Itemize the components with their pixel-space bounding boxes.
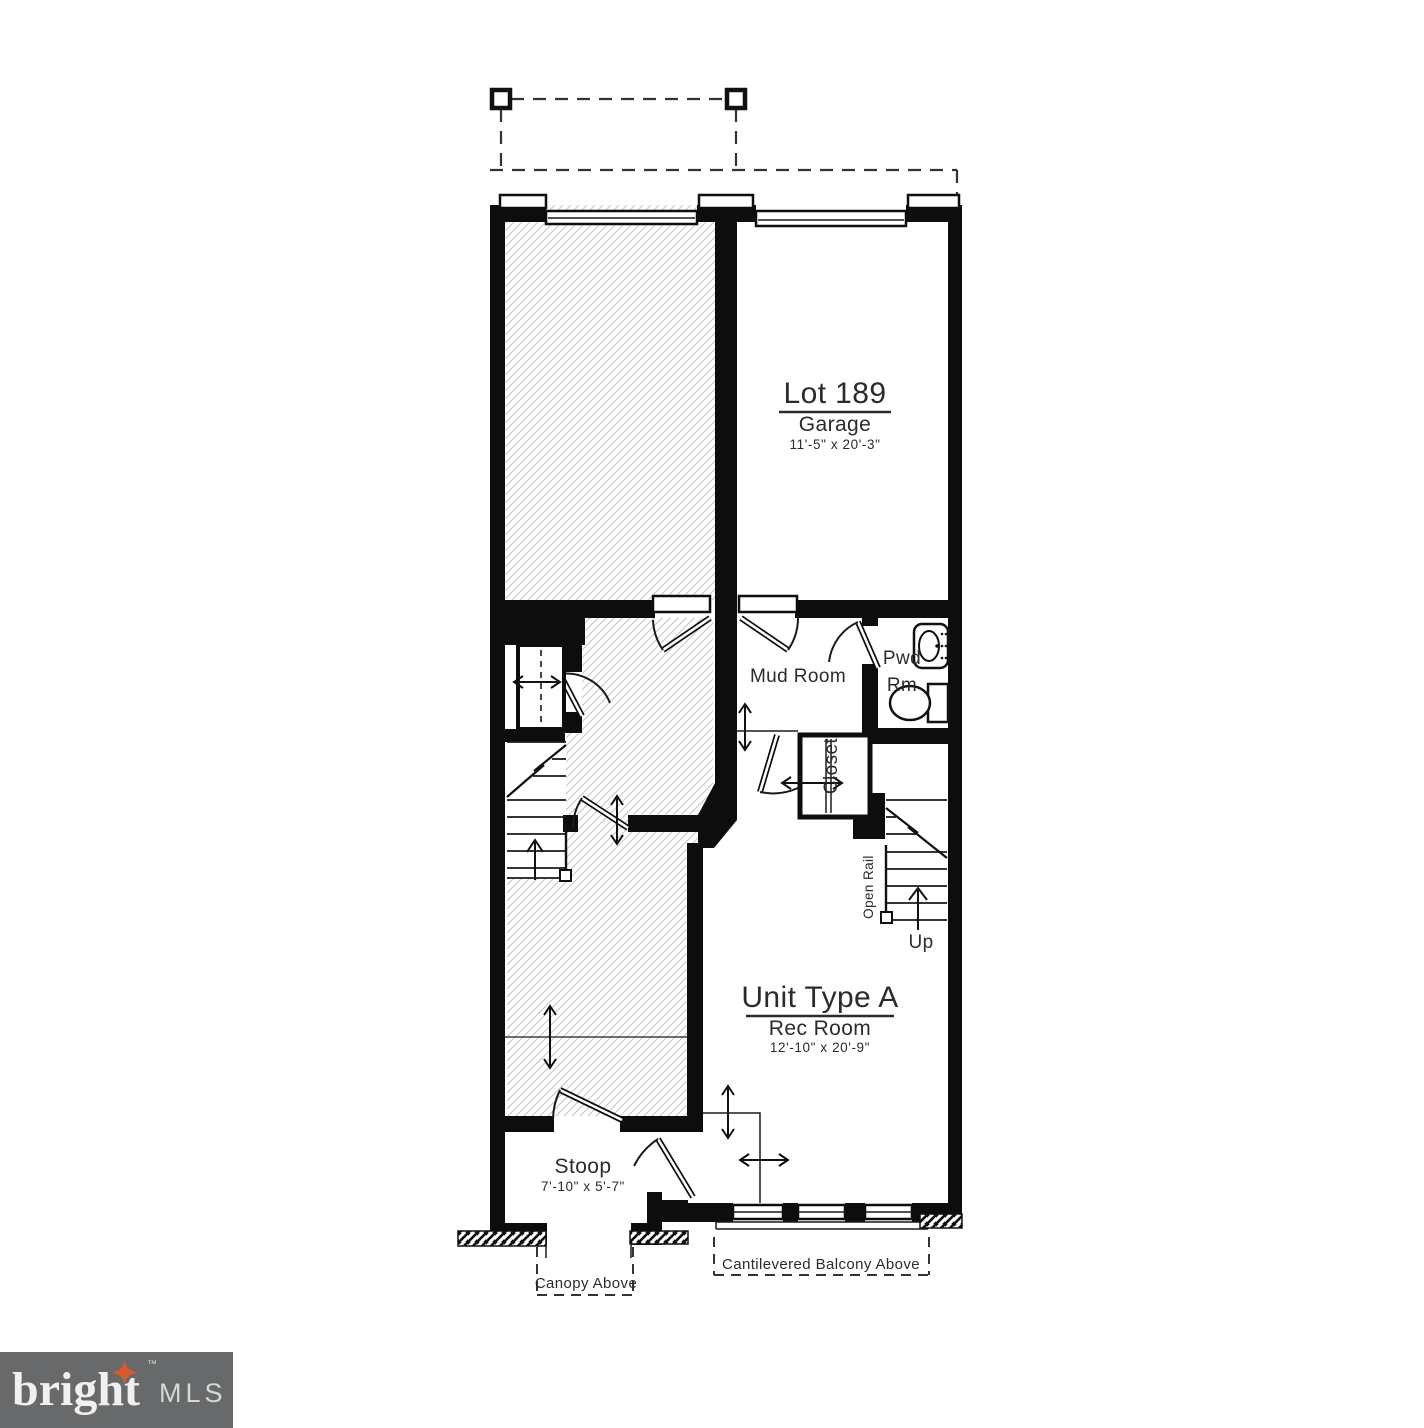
floor-plan-page: Lot 189 Garage 11'-5" x 20'-3" Mud Room … xyxy=(0,0,1424,1428)
rec-room-windows xyxy=(733,1205,912,1219)
unit-room: Rec Room xyxy=(769,1017,871,1040)
door-front-entry xyxy=(634,1139,693,1197)
brightmls-logo: bright ™ MLS xyxy=(0,1352,233,1428)
mud-room-label: Mud Room xyxy=(750,666,846,687)
up-label: Up xyxy=(908,932,933,953)
logo-mls-text: MLS xyxy=(159,1378,227,1409)
lot-title: Lot 189 xyxy=(784,377,887,410)
unit-dims: 12'-10" x 20'-9" xyxy=(770,1040,870,1055)
powder-room-label2: Rm xyxy=(887,675,917,696)
powder-room-label: Pwd xyxy=(883,648,921,669)
door-powder-room xyxy=(829,622,878,668)
trademark-symbol: ™ xyxy=(147,1359,158,1370)
lot-dims: 11'-5" x 20'-3" xyxy=(789,437,880,452)
door-header xyxy=(653,596,710,612)
balcony-label: Cantilevered Balcony Above xyxy=(722,1256,920,1273)
post-marker xyxy=(492,90,510,108)
up-arrow-neighbor xyxy=(527,840,543,880)
garage-door-lot189 xyxy=(756,211,906,226)
newel-post xyxy=(881,912,892,923)
door-garage-to-mudroom xyxy=(741,616,798,650)
lot-room: Garage xyxy=(799,413,871,436)
stoop-dims: 7'-10" x 5'-7" xyxy=(541,1179,625,1194)
sparkle-icon xyxy=(112,1360,137,1385)
canopy-label: Canopy Above xyxy=(535,1275,637,1292)
floor-plan-drawing: Lot 189 Garage 11'-5" x 20'-3" Mud Room … xyxy=(0,0,1424,1428)
door-closet xyxy=(760,735,798,793)
stoop-title: Stoop xyxy=(555,1155,612,1178)
stairs-up xyxy=(881,800,947,930)
up-arrow xyxy=(909,888,927,930)
stairs-neighbor xyxy=(507,742,571,881)
post-marker xyxy=(727,90,745,108)
closet-label: Closet xyxy=(821,738,842,795)
open-rail-label: Open Rail xyxy=(861,855,876,919)
closet-neighbor xyxy=(518,645,564,729)
unit-title: Unit Type A xyxy=(741,981,898,1014)
door-header xyxy=(739,596,797,612)
driveway-outline xyxy=(490,90,957,203)
